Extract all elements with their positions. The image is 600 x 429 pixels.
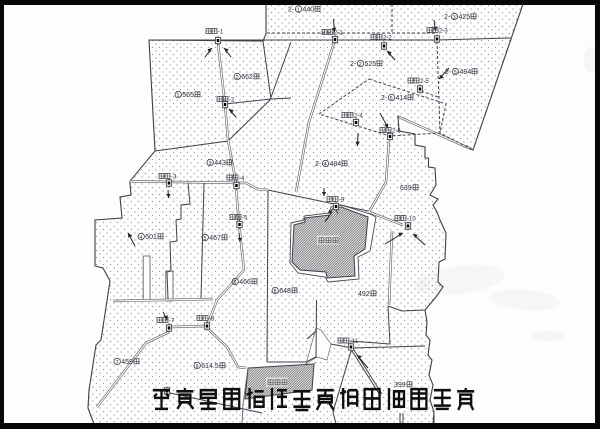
svg-text:565: 565 [182, 92, 194, 99]
svg-text:-1: -1 [218, 30, 224, 36]
svg-text:484: 484 [330, 161, 342, 168]
svg-text:2-: 2- [315, 161, 322, 168]
svg-text:-11: -11 [350, 339, 359, 345]
svg-text:492: 492 [358, 291, 370, 298]
svg-text:2-: 2- [444, 14, 451, 21]
svg-text:6: 6 [234, 280, 237, 286]
svg-text:3: 3 [209, 161, 212, 167]
svg-text:1: 1 [177, 93, 180, 99]
svg-text:3: 3 [453, 15, 456, 21]
svg-text:5: 5 [204, 236, 207, 242]
svg-text:2-4: 2-4 [354, 114, 363, 120]
svg-text:399: 399 [394, 382, 406, 389]
svg-text:2-5: 2-5 [420, 79, 429, 85]
svg-text:2-: 2- [381, 95, 388, 102]
svg-text:-2: -2 [229, 98, 235, 104]
svg-text:-3: -3 [171, 175, 177, 181]
svg-text:443: 443 [214, 160, 226, 167]
svg-text:-8: -8 [209, 317, 215, 323]
svg-text:2-: 2- [288, 7, 295, 14]
svg-text:2-6: 2-6 [392, 129, 401, 135]
svg-text:425: 425 [459, 14, 471, 21]
svg-text:467: 467 [209, 235, 221, 242]
svg-text:6: 6 [196, 364, 199, 370]
svg-text:2-: 2- [445, 69, 452, 76]
svg-text:614.5: 614.5 [201, 363, 219, 370]
svg-text:8: 8 [274, 289, 277, 295]
svg-text:494: 494 [460, 69, 472, 76]
svg-text:4: 4 [324, 162, 327, 168]
svg-text:459: 459 [121, 359, 133, 366]
svg-text:662: 662 [241, 74, 253, 81]
svg-text:-5: -5 [242, 216, 248, 222]
svg-text:2: 2 [236, 75, 239, 81]
svg-text:-4: -4 [239, 176, 245, 182]
svg-text:2: 2 [359, 62, 362, 68]
svg-text:501: 501 [145, 234, 157, 241]
svg-text:466: 466 [239, 279, 251, 286]
svg-text:6: 6 [390, 96, 393, 102]
svg-text:414: 414 [396, 95, 408, 102]
svg-text:7: 7 [116, 360, 119, 366]
svg-text:1: 1 [297, 8, 300, 14]
svg-text:4: 4 [140, 235, 143, 241]
svg-text:639: 639 [400, 185, 412, 192]
svg-text:-7: -7 [169, 319, 175, 325]
svg-text:5: 5 [454, 70, 457, 76]
svg-text:-9: -9 [339, 198, 345, 204]
svg-text:2-: 2- [350, 61, 357, 68]
svg-text:2-3: 2-3 [439, 29, 448, 35]
svg-text:-10: -10 [407, 217, 416, 223]
svg-text:2-2: 2-2 [383, 36, 392, 42]
svg-text:440: 440 [303, 7, 315, 14]
svg-text:648: 648 [279, 288, 291, 295]
svg-text:2-1: 2-1 [334, 31, 343, 37]
svg-text:525: 525 [365, 61, 377, 68]
